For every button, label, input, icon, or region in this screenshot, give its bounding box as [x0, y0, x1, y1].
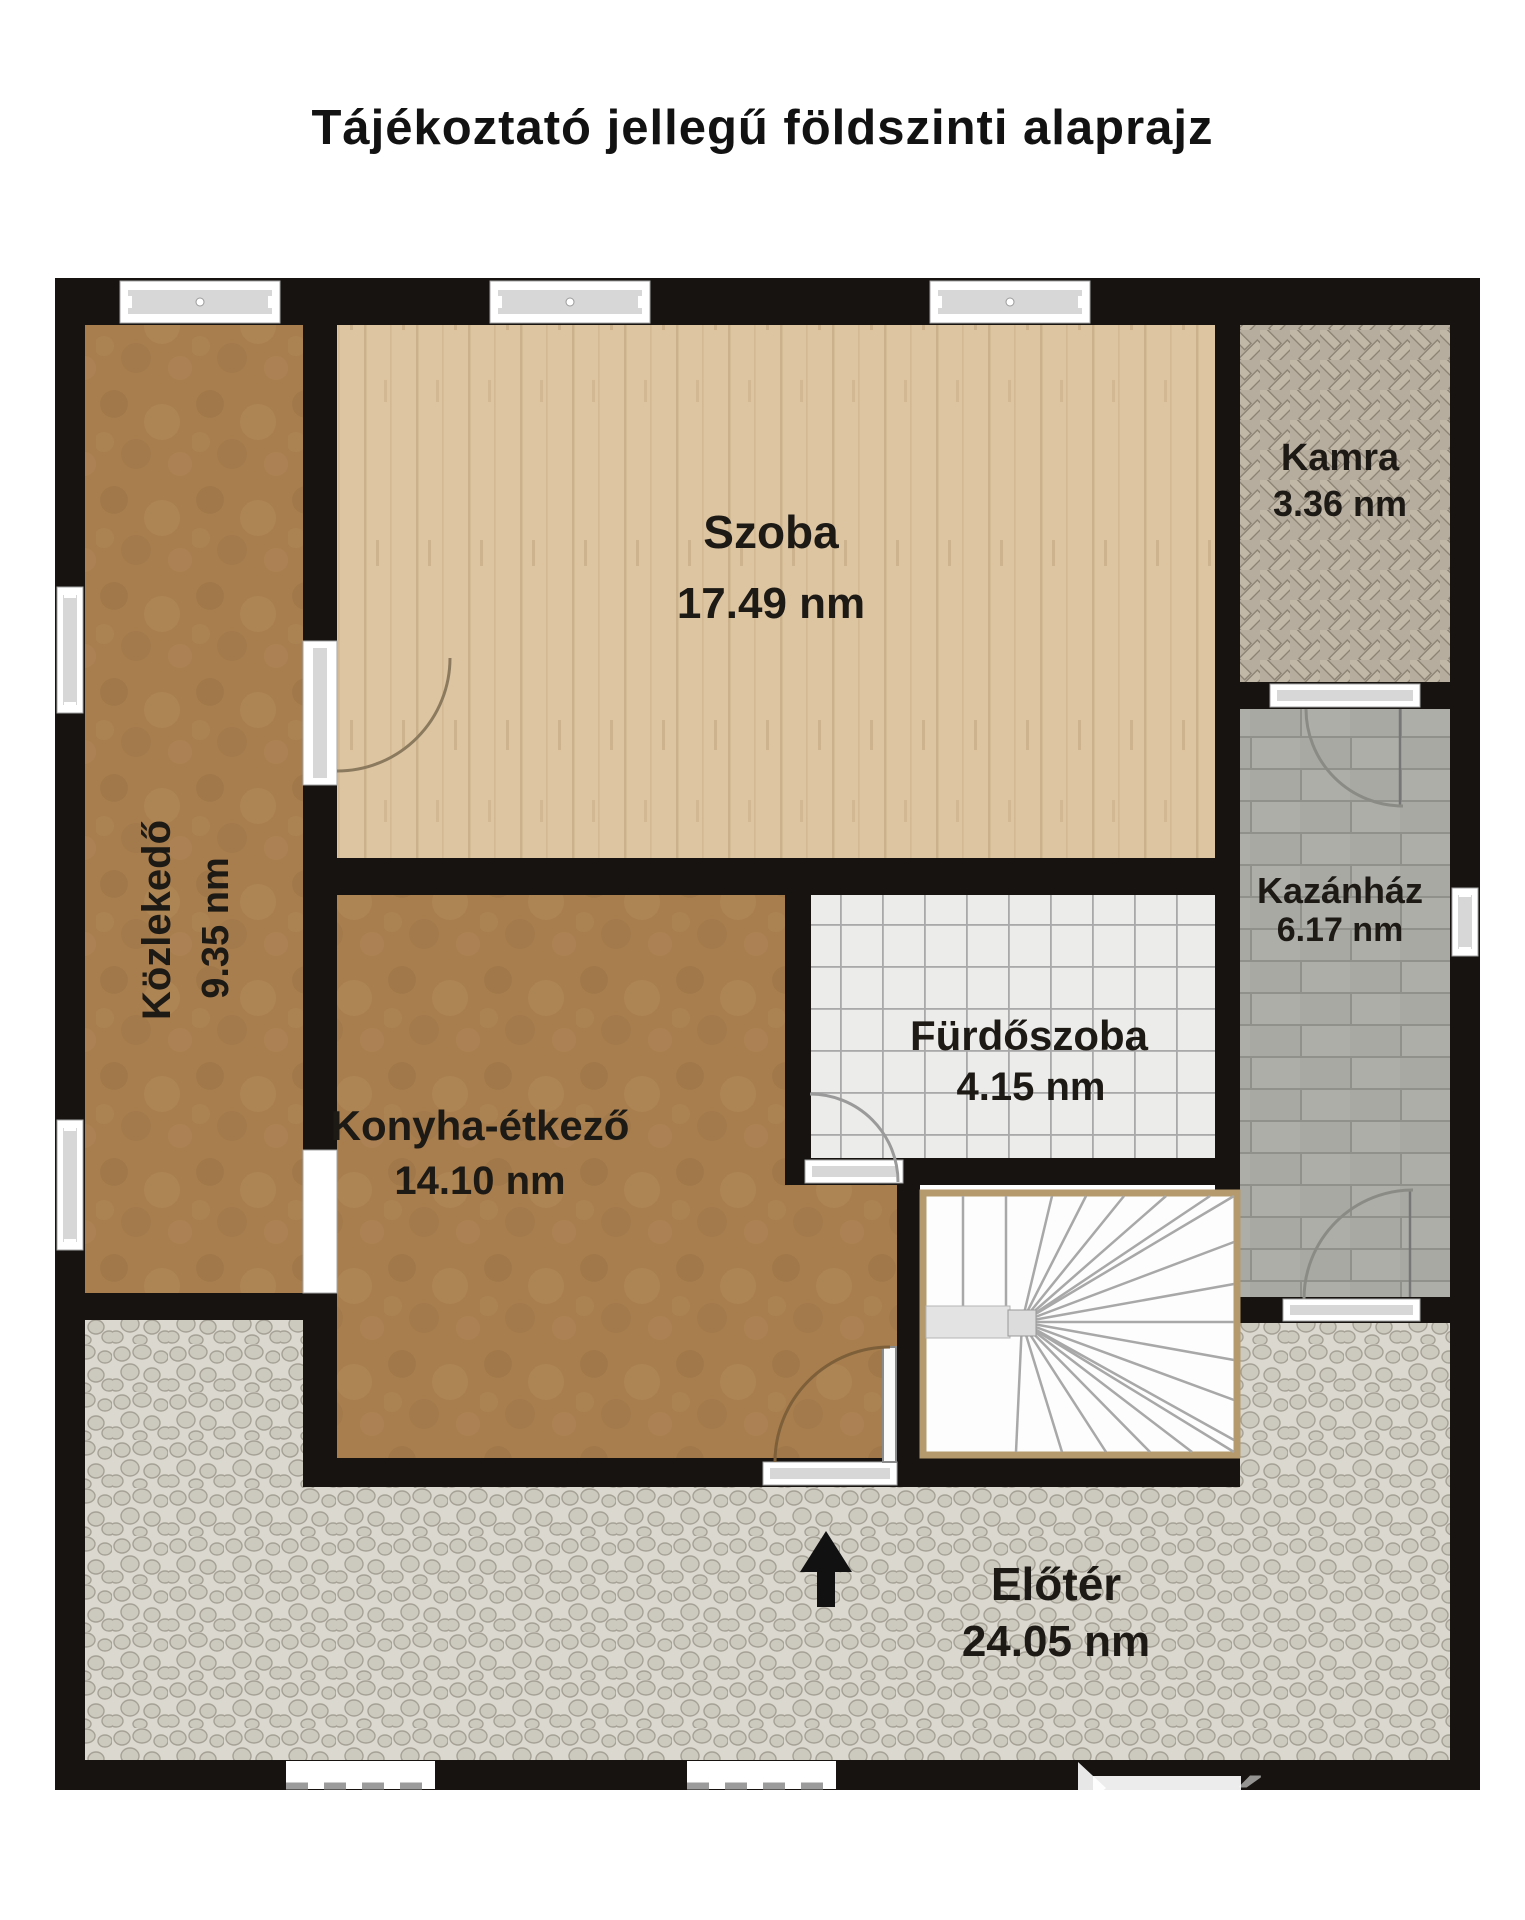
eloter-area: 24.05 nm — [962, 1617, 1150, 1666]
wall-left — [55, 278, 85, 1790]
window-top-3 — [930, 281, 1090, 323]
kozlekedo-floor — [85, 325, 307, 1293]
wall-konyha-stairs — [897, 1185, 920, 1487]
furdoszoba-area: 4.15 nm — [957, 1065, 1106, 1109]
floor-plan-svg: Szoba 17.49 nm Kamra 3.36 nm Közlekedő 9… — [0, 0, 1525, 1920]
stair-landing — [926, 1306, 1010, 1338]
kamra-label: Kamra — [1281, 437, 1400, 479]
kazanhaz-label: Kazánház — [1257, 870, 1423, 911]
konyha-label: Konyha-étkező — [331, 1102, 630, 1149]
window-left-1 — [57, 587, 83, 713]
furdoszoba-label: Fürdőszoba — [910, 1012, 1149, 1059]
window-top-1 — [120, 281, 280, 323]
wall-konyha-furdo — [785, 895, 811, 1185]
floor-plan-page: Tájékoztató jellegű földszinti alaprajz — [0, 0, 1525, 1920]
szoba-area: 17.49 nm — [677, 579, 865, 628]
staircase — [923, 1193, 1237, 1455]
kamra-area: 3.36 nm — [1273, 483, 1407, 524]
window-right-1 — [1452, 888, 1478, 956]
wall-kozlekedo-eloter — [85, 1293, 337, 1320]
konyha-passage — [303, 1150, 337, 1293]
kazanhaz-area: 6.17 nm — [1277, 911, 1404, 949]
window-top-2 — [490, 281, 650, 323]
kozlekedo-area: 9.35 nm — [195, 857, 237, 999]
wall-szoba-south — [303, 858, 1238, 895]
konyha-area: 14.10 nm — [394, 1159, 565, 1203]
stair-center-post — [1008, 1310, 1036, 1336]
watermark: VÁROSI — [1078, 1762, 1525, 1871]
wall-right — [1450, 278, 1480, 1790]
watermark-text: VÁROSI — [1150, 1775, 1525, 1871]
kozlekedo-label: Közlekedő — [135, 820, 179, 1020]
szoba-label: Szoba — [703, 506, 839, 558]
window-left-2 — [57, 1120, 83, 1250]
kazanhaz-floor — [1240, 709, 1450, 1297]
eloter-label: Előtér — [991, 1558, 1121, 1610]
